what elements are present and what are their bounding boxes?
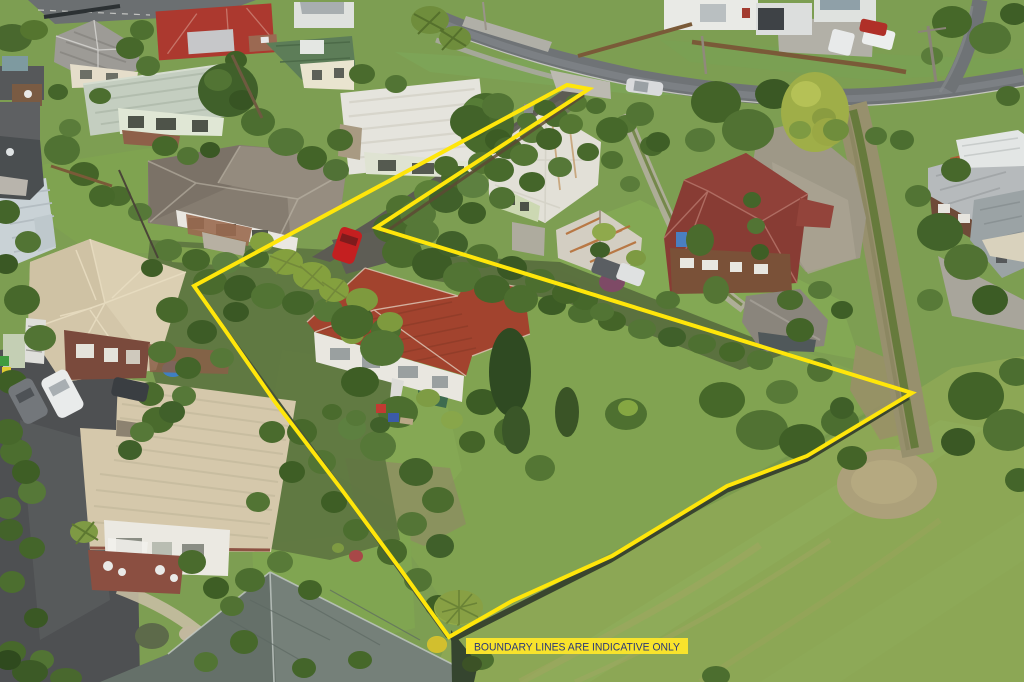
svg-text:BOUNDARY LINES ARE INDICATIVE: BOUNDARY LINES ARE INDICATIVE ONLY (474, 642, 681, 654)
